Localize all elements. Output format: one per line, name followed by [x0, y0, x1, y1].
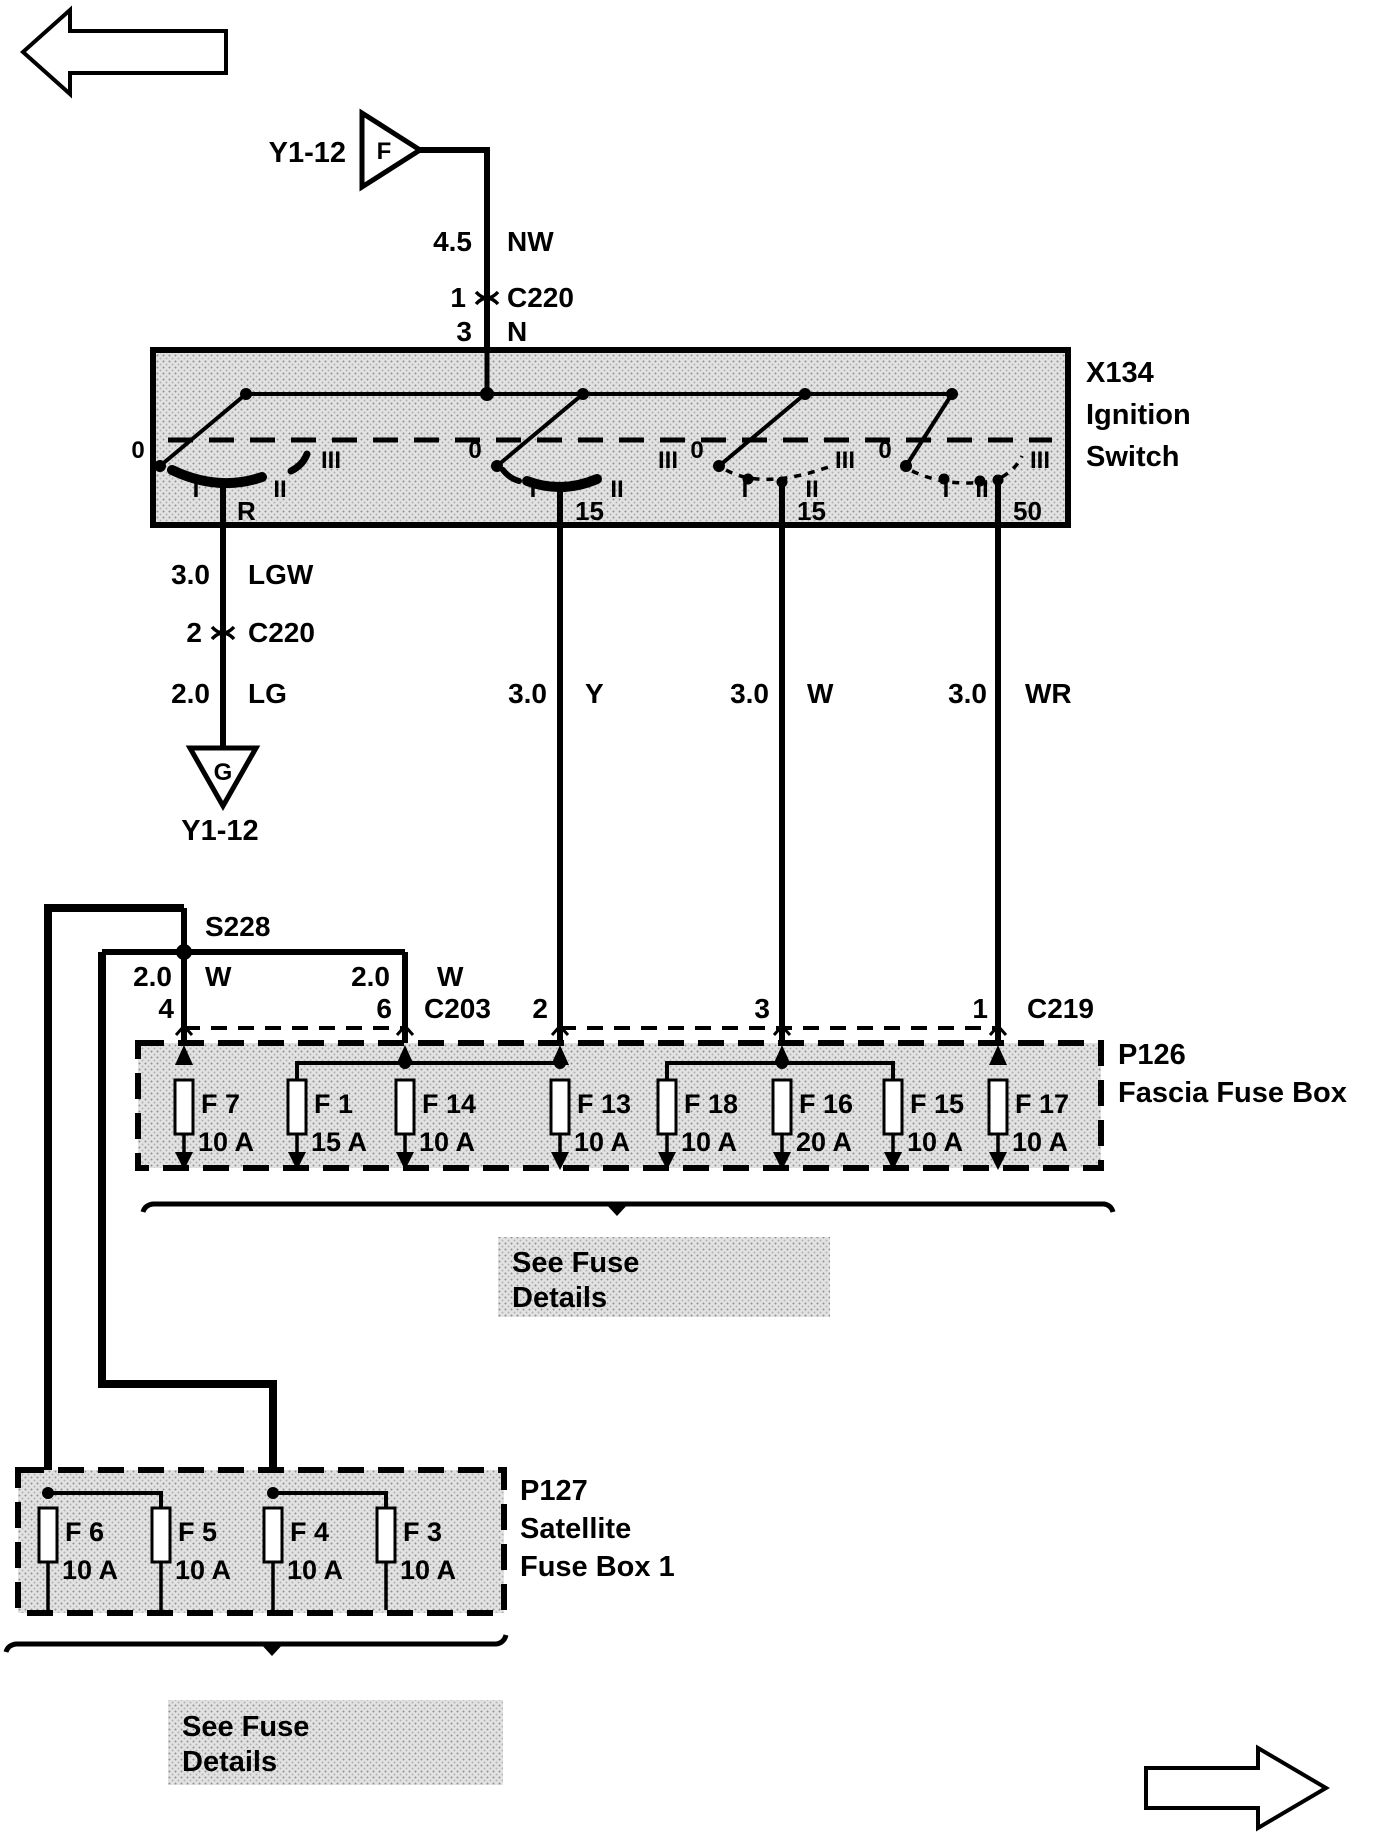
wire-w-size: 3.0: [730, 678, 769, 709]
fuse-f1-rating: 15 A: [311, 1127, 367, 1157]
switch3-pos-3: III: [835, 447, 855, 474]
ground-letter: G: [214, 759, 233, 786]
ignition-switch-name2: Switch: [1086, 441, 1179, 473]
branch4-size: 2.0: [133, 961, 172, 992]
fuse-f17-icon: [989, 1080, 1007, 1134]
fuse-f15-rating: 10 A: [907, 1127, 963, 1157]
fascia-bus1-dot-f14: [399, 1057, 411, 1069]
fuse-f18-id: F 18: [684, 1089, 738, 1119]
satellite-note-line1: See Fuse: [182, 1711, 309, 1743]
c220-upper-name: C220: [507, 282, 574, 313]
c219-pin1: 1: [972, 993, 988, 1024]
fuse-f3-id: F 3: [403, 1517, 442, 1547]
c220-upper-pin: 1: [450, 282, 466, 313]
wire-nw-size: 4.5: [433, 226, 472, 257]
pin4-label: 4: [158, 993, 174, 1024]
switch2-pos-1: I: [530, 476, 537, 503]
fuse-f7-rating: 10 A: [198, 1127, 254, 1157]
fascia-box-id: P126: [1118, 1039, 1186, 1071]
switch1-pos-2: II: [273, 476, 286, 503]
ignition-switch-id: X134: [1086, 357, 1154, 389]
fuse-f4-rating: 10 A: [287, 1555, 343, 1585]
satellite-box-id: P127: [520, 1475, 588, 1507]
fuse-f16-rating: 20 A: [796, 1127, 852, 1157]
fuse-f3-icon: [377, 1508, 395, 1562]
switch2-blade-top: [577, 388, 589, 400]
switch1-blade-top: [240, 388, 252, 400]
fascia-bus1-dot-f13: [554, 1057, 566, 1069]
fuse-f16-id: F 16: [799, 1089, 853, 1119]
pin6-label: 6: [376, 993, 392, 1024]
c220-lower-pin: 2: [186, 617, 202, 648]
c220-lower-name: C220: [248, 617, 315, 648]
switch1-pos-0: 0: [131, 437, 144, 464]
wire-nw-color: NW: [507, 226, 554, 257]
branch4-color: W: [205, 961, 232, 992]
fuse-f5-rating: 10 A: [175, 1555, 231, 1585]
wire-y-size: 3.0: [508, 678, 547, 709]
wiring-diagram: Y1-12 F 4.5 NW 1 C220 3 N X134 Ignition …: [0, 0, 1376, 1834]
switch4-pos-1: I: [943, 476, 950, 503]
wire-lgw-color: LGW: [248, 559, 314, 590]
fuse-f13-icon: [551, 1080, 569, 1134]
switch1-pos-1: I: [193, 476, 200, 503]
wire-lg-color: LG: [248, 678, 287, 709]
fuse-f6-rating: 10 A: [62, 1555, 118, 1585]
switch2-pos-3: III: [658, 447, 678, 474]
wire-lg-size: 2.0: [171, 678, 210, 709]
switch2-pos-0: 0: [468, 437, 481, 464]
fuse-f3-rating: 10 A: [400, 1555, 456, 1585]
fuse-f17-rating: 10 A: [1012, 1127, 1068, 1157]
fascia-note-line1: See Fuse: [512, 1247, 639, 1279]
wire-y-color: Y: [585, 678, 604, 709]
satellite-bus2-dot: [267, 1487, 279, 1499]
fuse-f5-icon: [152, 1508, 170, 1562]
wire-lgw-size: 3.0: [171, 559, 210, 590]
connector-c203-label: C203: [424, 993, 491, 1024]
splice-id: S228: [205, 911, 270, 942]
satellite-note-line2: Details: [182, 1746, 277, 1778]
wire-w-color: W: [807, 678, 834, 709]
wiring-diagram-page: Y1-12 F 4.5 NW 1 C220 3 N X134 Ignition …: [0, 0, 1376, 1834]
ignition-switch-box: X134 Ignition Switch 0 I II III R 0: [131, 350, 1190, 526]
fascia-note-line2: Details: [512, 1282, 607, 1314]
fuse-f16-icon: [773, 1080, 791, 1134]
switch2-pos-2: II: [610, 476, 623, 503]
fuse-f18-rating: 10 A: [681, 1127, 737, 1157]
switch1-pivot: [154, 460, 166, 472]
fuse-f13-rating: 10 A: [574, 1127, 630, 1157]
fuse-f6-id: F 6: [65, 1517, 104, 1547]
fuse-f4-icon: [264, 1508, 282, 1562]
fuse-f7-id: F 7: [201, 1089, 240, 1119]
fuse-f14-rating: 10 A: [419, 1127, 475, 1157]
c219-pin2: 2: [532, 993, 548, 1024]
fuse-f17-id: F 17: [1015, 1089, 1069, 1119]
satellite-box-name2: Fuse Box 1: [520, 1551, 675, 1583]
fuse-f4-id: F 4: [290, 1517, 329, 1547]
switch-pin-number: 3: [456, 316, 472, 347]
satellite-bus1-dot: [42, 1487, 54, 1499]
switch4-blade-top: [946, 388, 958, 400]
connector-c219-label: C219: [1027, 993, 1094, 1024]
branch6-size: 2.0: [351, 961, 390, 992]
switch4-pos-0: 0: [878, 437, 891, 464]
satellite-box-name1: Satellite: [520, 1513, 631, 1545]
wire-wr-color: WR: [1025, 678, 1072, 709]
switch3-pos-0: 0: [690, 437, 703, 464]
fuse-f14-id: F 14: [422, 1089, 476, 1119]
switch-pin-color: N: [507, 316, 527, 347]
fuse-f18-icon: [658, 1080, 676, 1134]
wire-wr-size: 3.0: [948, 678, 987, 709]
c219-pin3: 3: [754, 993, 770, 1024]
switch4-pos-3: III: [1030, 447, 1050, 474]
ignition-switch-name1: Ignition: [1086, 399, 1191, 431]
switch3-pos-1: I: [742, 476, 749, 503]
ground-label: Y1-12: [181, 815, 258, 847]
fuse-f13-id: F 13: [577, 1089, 631, 1119]
fuse-f7-icon: [175, 1080, 193, 1134]
fuse-f15-id: F 15: [910, 1089, 964, 1119]
switch3-blade-top: [799, 388, 811, 400]
feed-label: Y1-12: [269, 137, 346, 169]
terminal-15b: 15: [797, 496, 826, 526]
switch4-pos-2: II: [975, 476, 988, 503]
branch6-color: W: [437, 961, 464, 992]
fascia-bus2-dot-f16: [776, 1057, 788, 1069]
switch4-pivot: [900, 460, 912, 472]
fuse-f6-icon: [39, 1508, 57, 1562]
fuse-f5-id: F 5: [178, 1517, 217, 1547]
fuse-f14-icon: [396, 1080, 414, 1134]
fuse-f15-icon: [884, 1080, 902, 1134]
terminal-r: R: [237, 496, 256, 526]
fuse-f1-icon: [288, 1080, 306, 1134]
switch3-pivot: [713, 460, 725, 472]
switch1-pos-3: III: [321, 447, 341, 474]
feed-letter: F: [377, 138, 392, 165]
bus-junction: [480, 387, 494, 401]
fascia-box-name: Fascia Fuse Box: [1118, 1077, 1347, 1109]
terminal-50: 50: [1013, 496, 1042, 526]
terminal-15a: 15: [575, 496, 604, 526]
fuse-f1-id: F 1: [314, 1089, 353, 1119]
